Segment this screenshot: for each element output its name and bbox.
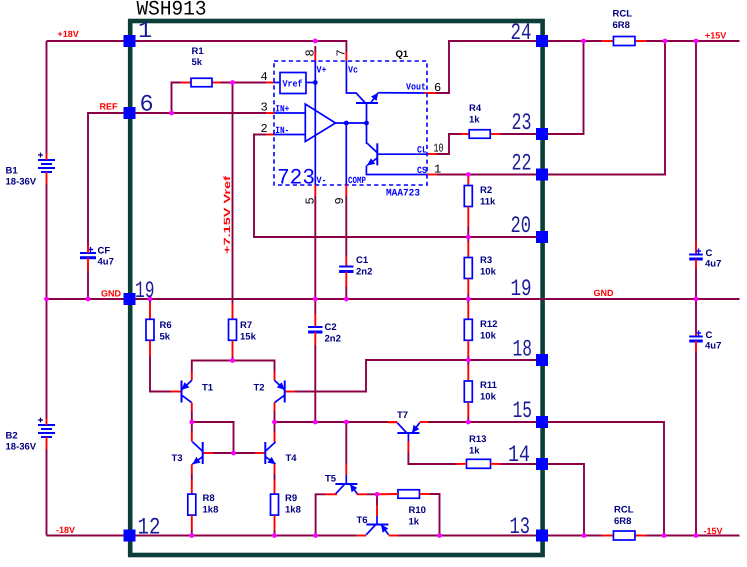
svg-text:T2: T2	[254, 383, 265, 394]
svg-text:5k: 5k	[192, 57, 203, 68]
svg-text:10k: 10k	[480, 331, 497, 342]
svg-text:23: 23	[512, 110, 532, 137]
svg-text:1k: 1k	[409, 517, 420, 528]
svg-text:R4: R4	[469, 103, 482, 114]
svg-text:+18V: +18V	[58, 29, 79, 39]
svg-text:RCL: RCL	[614, 505, 634, 516]
svg-text:9: 9	[333, 197, 347, 204]
svg-text:6R8: 6R8	[613, 20, 630, 31]
svg-text:24: 24	[511, 20, 532, 47]
svg-text:R13: R13	[469, 434, 486, 445]
svg-text:1k8: 1k8	[285, 505, 301, 516]
svg-text:19: 19	[135, 278, 155, 305]
svg-text:13: 13	[510, 514, 531, 541]
svg-text:Q1: Q1	[396, 49, 409, 60]
svg-text:CL: CL	[417, 145, 427, 156]
svg-text:18: 18	[513, 337, 533, 364]
svg-text:-15V: -15V	[704, 526, 723, 536]
svg-text:20: 20	[511, 213, 532, 240]
svg-text:C: C	[706, 330, 713, 341]
svg-text:10k: 10k	[480, 392, 497, 403]
svg-text:Vc: Vc	[348, 65, 358, 76]
svg-text:19: 19	[511, 276, 532, 303]
svg-text:12: 12	[138, 515, 161, 542]
svg-text:11k: 11k	[480, 197, 496, 208]
svg-text:4u7: 4u7	[98, 257, 114, 268]
svg-text:C2: C2	[325, 322, 337, 333]
svg-text:4u7: 4u7	[705, 341, 721, 352]
svg-text:R1: R1	[192, 46, 205, 57]
svg-text:R6: R6	[160, 320, 172, 331]
svg-text:R7: R7	[240, 320, 252, 331]
svg-text:C1: C1	[356, 255, 369, 266]
svg-text:CS: CS	[417, 165, 427, 176]
svg-text:-18V: -18V	[56, 525, 75, 535]
svg-text:V+: V+	[317, 65, 327, 76]
svg-text:18-36V: 18-36V	[6, 177, 37, 188]
svg-text:B2: B2	[6, 431, 18, 442]
svg-text:1: 1	[434, 162, 441, 176]
svg-text:R2: R2	[480, 185, 492, 196]
svg-text:Vref: Vref	[283, 79, 303, 90]
svg-text:723: 723	[277, 166, 315, 191]
svg-text:7: 7	[335, 49, 349, 56]
svg-text:2n2: 2n2	[356, 267, 372, 278]
svg-text:C: C	[706, 248, 713, 259]
svg-text:6: 6	[140, 92, 154, 119]
svg-text:6R8: 6R8	[614, 516, 631, 527]
svg-text:5k: 5k	[160, 332, 171, 343]
svg-text:2n2: 2n2	[325, 334, 341, 345]
svg-text:22: 22	[512, 151, 532, 178]
svg-text:T6: T6	[357, 515, 368, 526]
svg-text:4: 4	[261, 70, 268, 84]
svg-text:R10: R10	[409, 505, 426, 516]
svg-text:R8: R8	[203, 493, 215, 504]
svg-text:18-36V: 18-36V	[6, 442, 37, 453]
svg-text:RCL: RCL	[613, 9, 633, 20]
svg-text:15k: 15k	[240, 332, 257, 343]
svg-text:6: 6	[434, 81, 441, 95]
svg-text:T7: T7	[397, 410, 408, 421]
svg-text:T3: T3	[172, 453, 183, 464]
svg-text:CF: CF	[98, 246, 111, 257]
svg-text:R9: R9	[285, 493, 297, 504]
svg-text:+7.15V Vref: +7.15V Vref	[222, 174, 232, 254]
svg-text:1k: 1k	[469, 115, 480, 126]
svg-text:R12: R12	[480, 319, 497, 330]
svg-text:MAA723: MAA723	[386, 189, 420, 200]
svg-text:R3: R3	[480, 255, 492, 266]
svg-text:4u7: 4u7	[705, 259, 721, 270]
svg-text:R11: R11	[480, 380, 498, 391]
svg-text:IN-: IN-	[275, 125, 289, 136]
svg-text:T5: T5	[325, 474, 337, 485]
svg-text:Vout: Vout	[406, 82, 426, 93]
svg-text:COMP: COMP	[348, 175, 366, 186]
svg-text:GND: GND	[101, 289, 122, 299]
svg-text:10k: 10k	[480, 267, 497, 278]
svg-text:REF: REF	[100, 102, 119, 112]
svg-text:V-: V-	[317, 175, 327, 186]
svg-text:14: 14	[508, 442, 530, 469]
svg-text:3: 3	[261, 101, 268, 115]
svg-text:15: 15	[513, 398, 533, 425]
svg-text:10: 10	[434, 142, 444, 156]
svg-text:T4: T4	[286, 453, 298, 464]
svg-text:B1: B1	[6, 166, 19, 177]
svg-text:1: 1	[138, 18, 152, 45]
svg-text:8: 8	[304, 49, 318, 56]
svg-text:+15V: +15V	[705, 31, 726, 41]
svg-text:T1: T1	[202, 383, 214, 394]
svg-text:1k: 1k	[469, 446, 480, 457]
svg-text:GND: GND	[594, 288, 615, 298]
svg-text:IN+: IN+	[275, 104, 289, 115]
svg-text:1k8: 1k8	[203, 505, 219, 516]
svg-text:2: 2	[261, 122, 268, 136]
